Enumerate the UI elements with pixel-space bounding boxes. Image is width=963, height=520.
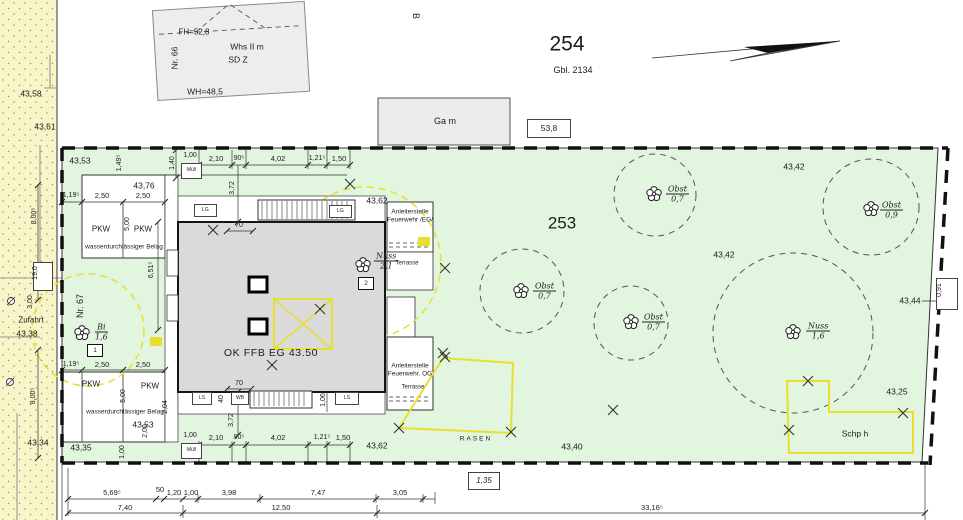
tree-label-nuss: Nuss1,6 — [806, 322, 830, 341]
dim: 1,19⁵ — [63, 361, 80, 369]
dim: 1,20 — [167, 489, 182, 497]
house-number-67: Nr. 67 — [76, 294, 86, 318]
dim: 12,50 — [272, 504, 291, 512]
column — [249, 277, 267, 292]
elevation: 43,35 — [70, 443, 91, 452]
dim: 1,49⁵ — [116, 155, 124, 172]
tree-label-obst: Obst0,9 — [880, 201, 903, 220]
house-number-66: Nr. 66 — [170, 47, 179, 70]
main-building — [178, 222, 385, 392]
dim-135-box: 1,35 — [468, 472, 500, 490]
parking-stall-label: PKW — [141, 383, 159, 392]
surface-label: wasserdurchlässiger Belag — [85, 243, 163, 250]
elevation: 43,58 — [20, 89, 41, 98]
dim: 50 — [156, 486, 164, 494]
dim: 2,04 — [162, 400, 170, 414]
dim: 1,00 — [183, 432, 197, 440]
dim: 2,50 — [95, 361, 110, 369]
parking-stall-label: PKW — [82, 381, 100, 390]
lg-box: LG — [194, 204, 217, 217]
wb-box: WB — [231, 392, 249, 405]
wh-label: WH=48,5 — [187, 87, 223, 96]
dim: 90⁵ — [234, 434, 245, 442]
terrace-label: Terrasse — [395, 261, 418, 268]
dim: 1,21⁵ — [314, 434, 331, 442]
waste-box: Müll — [181, 443, 202, 459]
street-width-dim: 8,00⁵ — [30, 388, 38, 405]
north-arrow-icon — [652, 41, 840, 61]
dim: 40 — [218, 395, 226, 403]
fh-label: FH=52,8 — [179, 29, 210, 38]
dim: 2,00 — [142, 424, 150, 438]
elevation: 43,53 — [69, 156, 90, 165]
dim: 5,00 — [124, 217, 132, 231]
fire-access-label: Anleiterstelle — [391, 362, 428, 369]
dim-53-8-box: 53,8 — [527, 119, 571, 138]
dim: 1,00 — [119, 445, 127, 459]
dim: 1,00 — [184, 489, 199, 497]
ls-box: LS — [192, 392, 212, 405]
dim: 1,50 — [332, 155, 347, 163]
parking-stall-label: PKW — [134, 226, 152, 235]
elevation: 43,42 — [713, 250, 734, 259]
dim: 1,21⁵ — [309, 155, 326, 163]
tree-tag-2: 2 — [358, 277, 374, 290]
terrace-label: Terrasse — [401, 385, 424, 392]
lawn-label: RASEN — [460, 435, 492, 442]
site-plan: FH=52,8 Nr. 66 Whs II m SD Z WH=48,5 B 2… — [0, 0, 963, 520]
dim: 1,50 — [336, 434, 351, 442]
dim: 4,02 — [271, 434, 286, 442]
driveway-label: Zufahrt — [18, 317, 43, 326]
roof-type: SD Z — [228, 55, 247, 64]
fire-access-label: Feuerwehr /EG/ — [387, 216, 433, 223]
surface-label: wasserdurchlässiger Belag — [86, 408, 164, 415]
street-dim: 3,00 — [27, 295, 35, 309]
waste-box: Müll — [181, 163, 202, 179]
dim: 7,40 — [118, 504, 133, 512]
point-b-label: B — [410, 13, 420, 19]
parking-stall-label: PKW — [92, 226, 110, 235]
house-type: Whs II m — [230, 42, 264, 51]
dim: 2,10 — [209, 434, 224, 442]
tree-label-obst: Obst0,7 — [642, 313, 665, 332]
elevation: 43,42 — [783, 162, 804, 171]
tree-label-birke: Bi1,6 — [95, 323, 108, 342]
tree-label-obst: Obst0,7 — [666, 185, 689, 204]
parcel-253-number: 253 — [548, 215, 576, 234]
dim: 3,05 — [393, 489, 408, 497]
elevation: 43,62 — [366, 441, 387, 450]
shed-label: Schp h — [842, 429, 868, 438]
elevation: 43,25 — [886, 387, 907, 396]
dim: 3,72 — [228, 413, 236, 427]
gbl-label: Gbl. 2134 — [553, 66, 592, 76]
dim-19-box: 19,0 — [33, 262, 53, 291]
elevation: 43,40 — [561, 442, 582, 451]
dim: 1,06 — [320, 393, 328, 407]
dim: 4,02 — [271, 155, 286, 163]
dim: 6,51⁵ — [148, 262, 156, 279]
dim: 3,72 — [229, 181, 237, 195]
tree-tag-1: 1 — [87, 344, 103, 357]
tree-label-obst: Obst0,7 — [533, 282, 556, 301]
parcel-254-number: 254 — [549, 32, 584, 55]
garage-label: Ga m — [434, 117, 456, 127]
dim: 2,10 — [209, 155, 224, 163]
dim: 70 — [235, 222, 243, 230]
dim: 7,47 — [311, 489, 326, 497]
lg-box: LG — [329, 205, 352, 218]
column — [249, 319, 267, 334]
elevation: 43,34 — [27, 438, 48, 447]
dim: 1,40 — [169, 156, 177, 170]
elevation: 43,38 — [16, 329, 37, 338]
dim: 5,69⁵ — [103, 489, 121, 497]
dim: 90⁵ — [234, 155, 245, 163]
elevation: 43,44 — [899, 296, 920, 305]
dim: 2,50 — [136, 192, 151, 200]
dim: 2,50 — [95, 192, 110, 200]
dim: 3,98 — [222, 489, 237, 497]
fire-access-label: Anleiterstelle — [391, 208, 428, 215]
dim: 1,19⁵ — [63, 192, 80, 200]
dim: 70 — [235, 380, 243, 388]
street-width-dim: 8,00⁵ — [31, 208, 39, 225]
elevation: 43,62 — [366, 196, 387, 205]
fire-access-label: Feuerwehr. OG — [388, 370, 432, 377]
elevation: 43,76 — [133, 181, 154, 190]
dim: 33,16⁵ — [641, 504, 663, 512]
dim: 1,00 — [183, 152, 197, 160]
ls-box: LS — [335, 392, 359, 405]
dim: 2,50 — [136, 361, 151, 369]
dim-091-box: 0,91 — [936, 278, 958, 310]
elevation: 43,61 — [34, 122, 55, 131]
dim: 5,00 — [120, 389, 128, 403]
floor-level-label: OK FFB EG 43.50 — [224, 348, 318, 360]
